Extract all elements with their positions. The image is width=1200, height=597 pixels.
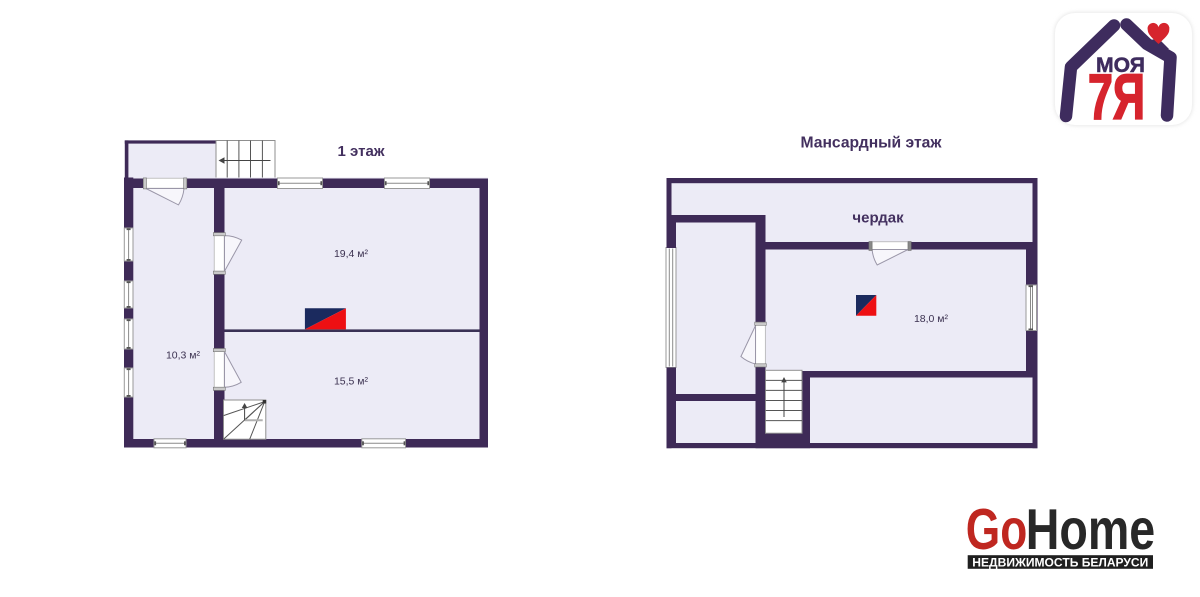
svg-text:18,0 м²: 18,0 м² — [914, 313, 949, 325]
svg-text:Мансардный этаж: Мансардный этаж — [801, 134, 943, 151]
svg-text:1 этаж: 1 этаж — [338, 143, 385, 160]
svg-text:7Я: 7Я — [1088, 61, 1145, 133]
svg-text:чердак: чердак — [852, 209, 904, 226]
svg-text:19,4 м²: 19,4 м² — [334, 248, 369, 260]
svg-text:Go: Go — [966, 498, 1028, 562]
svg-text:15,5 м²: 15,5 м² — [334, 376, 369, 388]
svg-text:НЕДВИЖИМОСТЬ БЕЛАРУСИ: НЕДВИЖИМОСТЬ БЕЛАРУСИ — [972, 555, 1148, 569]
svg-text:Home: Home — [1026, 498, 1156, 562]
svg-text:10,3 м²: 10,3 м² — [166, 350, 201, 362]
